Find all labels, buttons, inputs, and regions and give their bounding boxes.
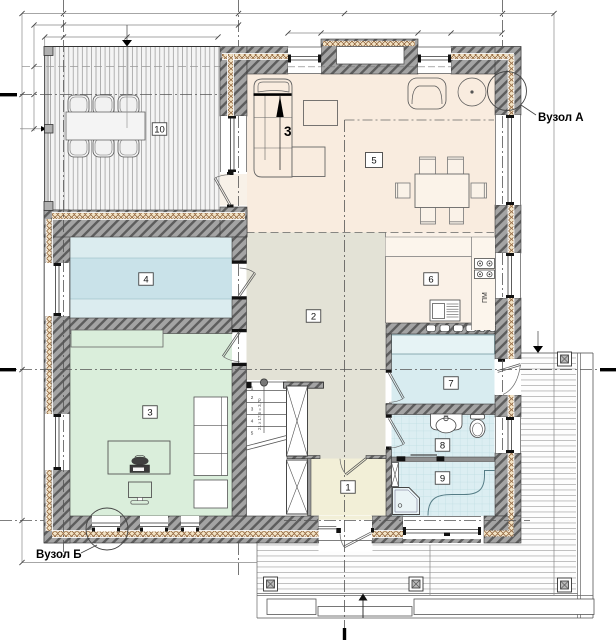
svg-text:9: 9 <box>440 473 445 484</box>
svg-text:2: 2 <box>251 395 254 400</box>
svg-text:2: 2 <box>311 311 316 322</box>
svg-text:6: 6 <box>428 274 433 285</box>
svg-text:3: 3 <box>147 407 152 418</box>
svg-text:4: 4 <box>251 418 254 423</box>
svg-text:8: 8 <box>440 440 445 451</box>
svg-text:4: 4 <box>143 274 148 285</box>
svg-text:3: 3 <box>284 124 292 139</box>
svg-text:Вузол А: Вузол А <box>538 112 584 124</box>
svg-text:21 x 17,6 = 3,70: 21 x 17,6 = 3,70 <box>257 398 262 430</box>
svg-text:1: 1 <box>251 385 254 390</box>
svg-text:1: 1 <box>345 482 350 493</box>
svg-text:10: 10 <box>154 124 165 135</box>
svg-text:ПМ: ПМ <box>482 292 489 303</box>
svg-text:Вузол Б: Вузол Б <box>36 549 81 561</box>
svg-text:5: 5 <box>371 155 376 166</box>
svg-text:5: 5 <box>251 430 254 435</box>
svg-text:7: 7 <box>448 378 453 389</box>
svg-text:3: 3 <box>251 406 254 411</box>
